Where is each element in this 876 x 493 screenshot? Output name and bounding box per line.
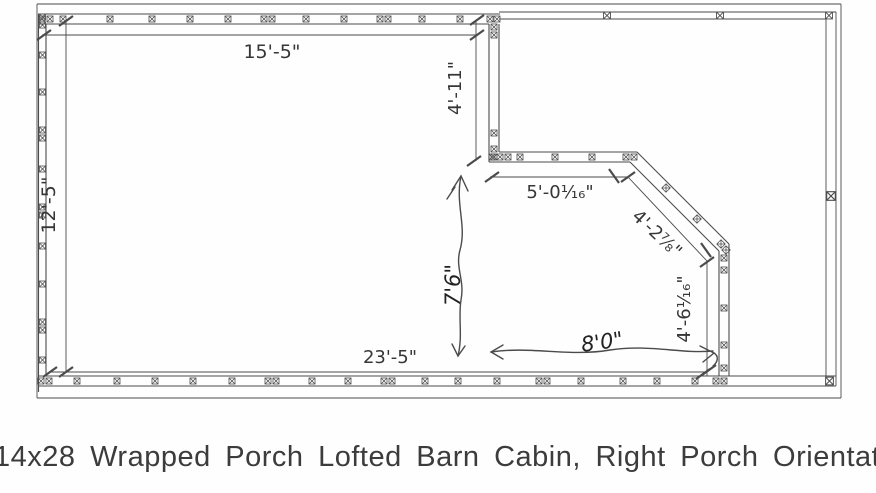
floor-plan-drawing: 15'-5" 12'-5" 4'-11" 5'-0¹⁄₁₆" 4'-2⁷⁄₈" … xyxy=(0,0,876,425)
dimension-ticks xyxy=(37,15,716,379)
dim-notch-width: 5'-0¹⁄₁₆" xyxy=(526,182,593,203)
dimension-labels: 15'-5" 12'-5" 4'-11" 5'-0¹⁄₁₆" 4'-2⁷⁄₈" … xyxy=(38,41,695,368)
wall-stud-marks xyxy=(38,14,730,384)
outer-boundary xyxy=(37,4,841,398)
dimension-lines xyxy=(42,20,707,376)
plan-caption: 14x28 Wrapped Porch Lofted Barn Cabin, R… xyxy=(0,441,876,474)
dim-left-height: 12'-5" xyxy=(38,176,60,233)
handwritten-width-label: 8'0" xyxy=(579,327,624,357)
dim-porch-notch-depth: 4'-11" xyxy=(445,61,466,115)
handwritten-height-label: 7'6" xyxy=(441,264,465,306)
scanned-floor-plan-page: { "document": { "caption": "14x28 Wrappe… xyxy=(0,0,876,493)
cabin-walls xyxy=(38,14,836,392)
dim-diagonal-wall: 4'-2⁷⁄₈" xyxy=(628,206,686,262)
dim-bottom-width: 23'-5" xyxy=(363,347,417,368)
dim-right-wall-segment: 4'-6¹⁄₁₆" xyxy=(674,275,695,342)
dim-top-width: 15'-5" xyxy=(243,41,300,63)
